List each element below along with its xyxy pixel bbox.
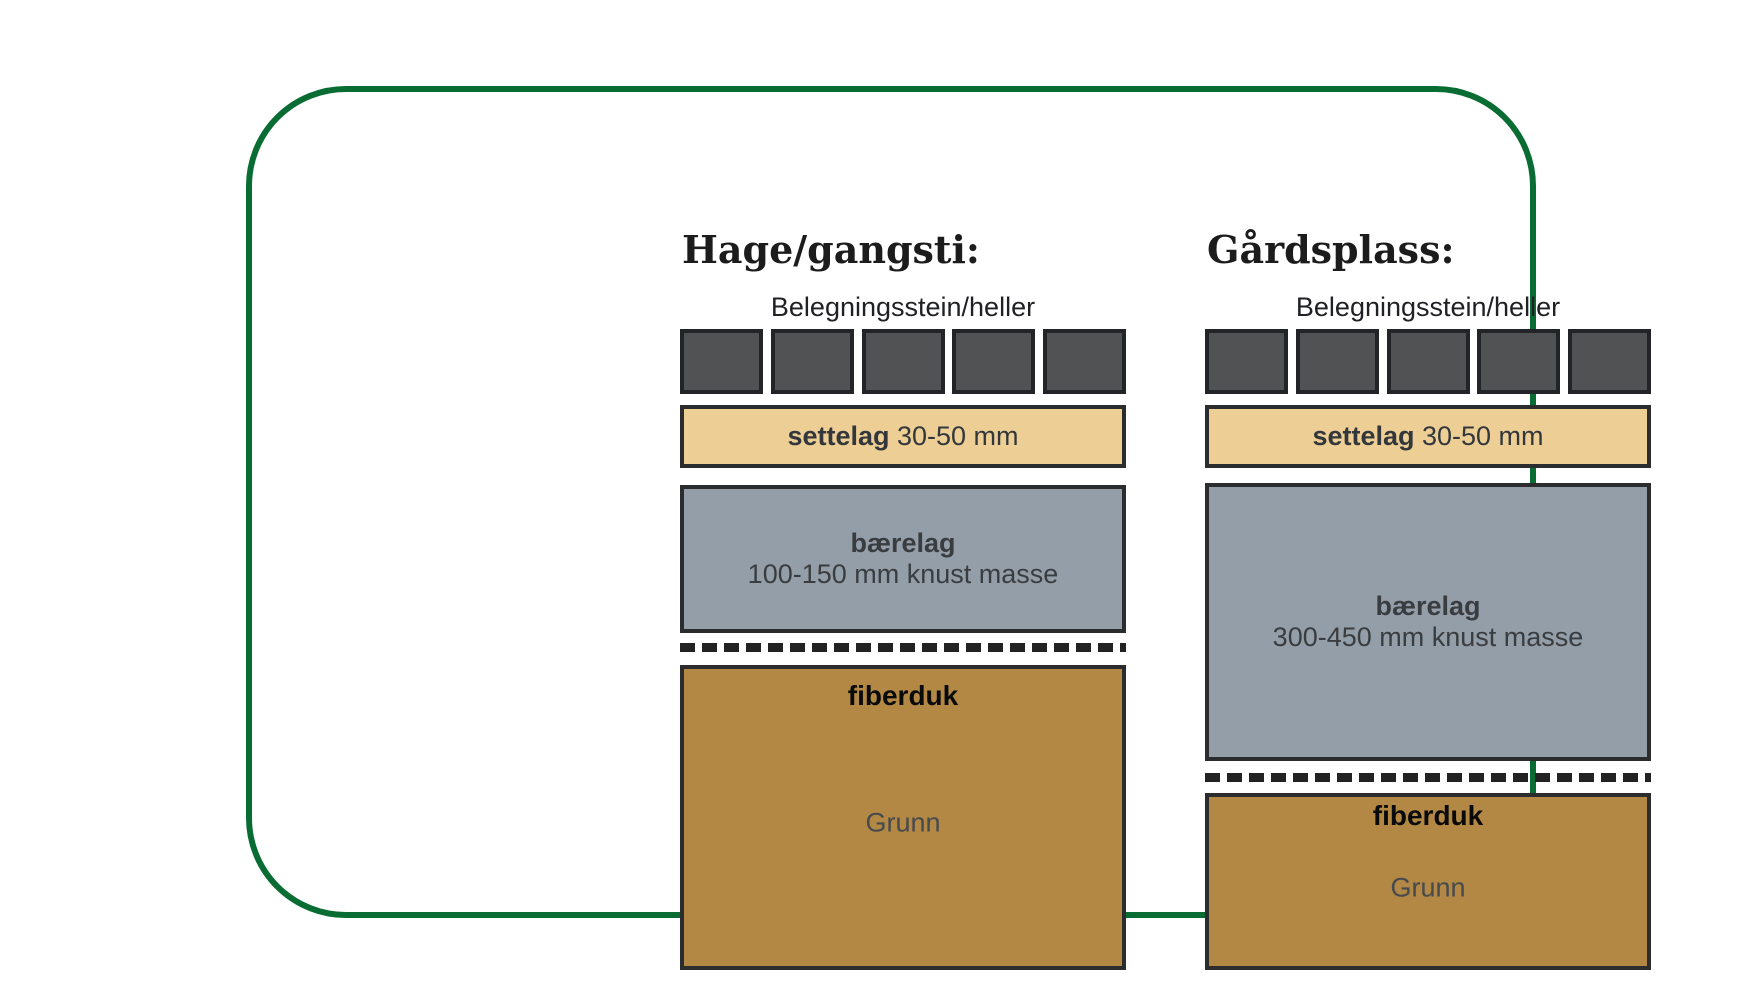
paving-stone-row — [680, 329, 1126, 394]
paving-stone — [1477, 329, 1560, 394]
settelag-label: settelag 30-50 mm — [787, 421, 1018, 452]
paving-stone — [862, 329, 945, 394]
paving-stone — [1387, 329, 1470, 394]
baerelag-label: bærelag — [850, 528, 955, 559]
baerelag-layer: bærelag 100-150 mm knust masse — [680, 485, 1126, 633]
grunn-layer: fiberduk Grunn — [680, 665, 1126, 970]
grunn-label: Grunn — [1209, 873, 1647, 904]
grunn-label: Grunn — [684, 808, 1122, 839]
fiberduk-dashed-line — [1205, 773, 1651, 782]
paving-layers-diagram: Hage/gangsti: Belegningsstein/heller set… — [0, 0, 1764, 992]
paving-stone — [1296, 329, 1379, 394]
paving-stone-row — [1205, 329, 1651, 394]
settelag-layer: settelag 30-50 mm — [680, 405, 1126, 468]
paving-stone — [1043, 329, 1126, 394]
paver-stones-label: Belegningsstein/heller — [1205, 291, 1651, 323]
settelag-layer: settelag 30-50 mm — [1205, 405, 1651, 468]
fiberduk-dashed-line — [680, 643, 1126, 652]
paving-stone — [1568, 329, 1651, 394]
paving-stone — [952, 329, 1035, 394]
green-rounded-frame: Hage/gangsti: Belegningsstein/heller set… — [246, 86, 1536, 918]
baerelag-layer: bærelag 300-450 mm knust masse — [1205, 483, 1651, 761]
column-gardsplass: Gårdsplass: Belegningsstein/heller sette… — [1205, 92, 1651, 912]
baerelag-detail: 100-150 mm knust masse — [748, 559, 1059, 590]
paving-stone — [680, 329, 763, 394]
settelag-label: settelag 30-50 mm — [1312, 421, 1543, 452]
paving-stone — [1205, 329, 1288, 394]
fiberduk-label: fiberduk — [1209, 801, 1647, 831]
column-title: Hage/gangsti: — [682, 228, 980, 272]
baerelag-detail: 300-450 mm knust masse — [1273, 622, 1584, 653]
grunn-layer: fiberduk Grunn — [1205, 793, 1651, 970]
paver-stones-label: Belegningsstein/heller — [680, 291, 1126, 323]
fiberduk-label: fiberduk — [684, 681, 1122, 711]
paving-stone — [771, 329, 854, 394]
baerelag-label: bærelag — [1375, 591, 1480, 622]
column-hage-gangsti: Hage/gangsti: Belegningsstein/heller set… — [680, 92, 1126, 912]
column-title: Gårdsplass: — [1207, 228, 1455, 272]
